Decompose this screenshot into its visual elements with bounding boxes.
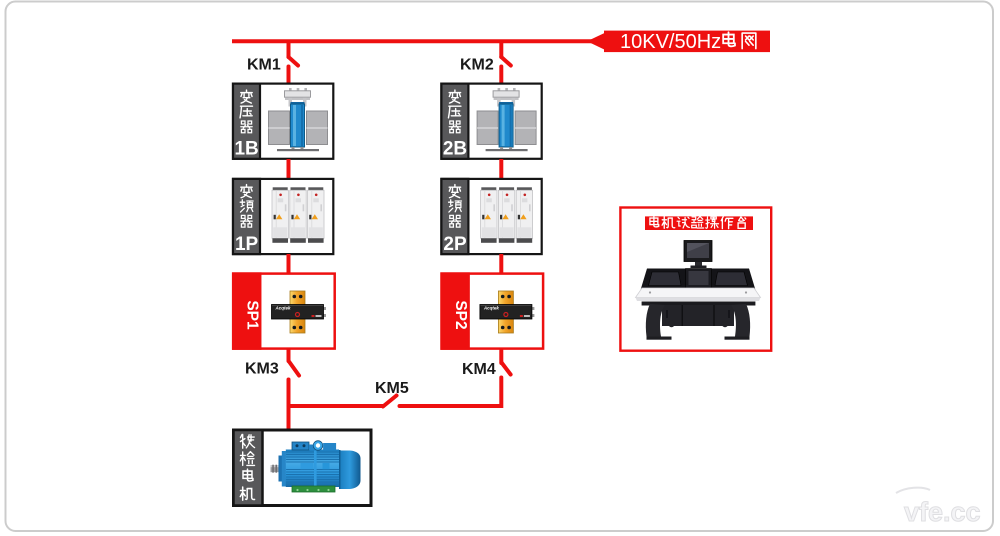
svg-text:KM1: KM1 [247,56,281,73]
svg-text:10KV/50Hz: 10KV/50Hz [620,31,721,53]
svg-text:1B: 1B [234,139,258,160]
svg-text:KM3: KM3 [245,361,279,378]
svg-text:SP2: SP2 [452,300,469,329]
svg-text:SP1: SP1 [244,300,261,330]
svg-text:KM2: KM2 [460,56,494,73]
svg-text:vfe.cc: vfe.cc [904,497,981,527]
svg-text:KM5: KM5 [375,380,409,397]
svg-text:1P: 1P [235,234,259,255]
svg-text:2B: 2B [443,139,467,160]
svg-text:KM4: KM4 [462,361,496,378]
svg-text:2P: 2P [443,234,467,255]
